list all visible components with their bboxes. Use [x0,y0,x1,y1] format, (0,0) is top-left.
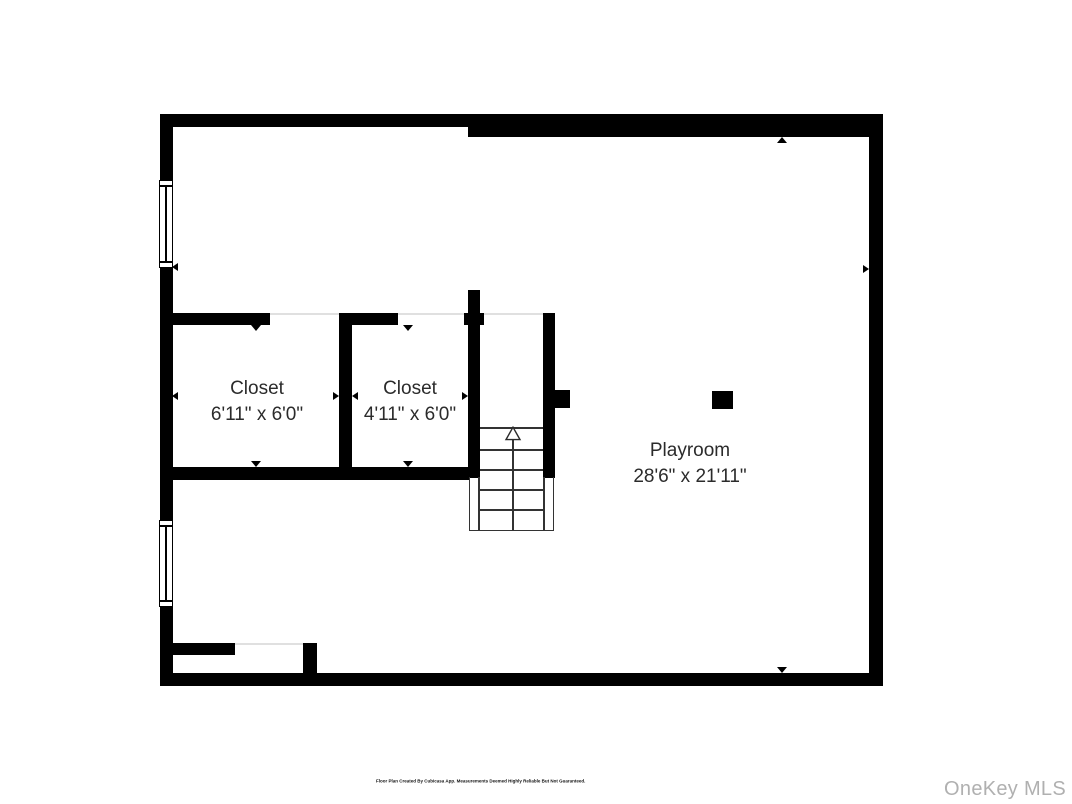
stair-left-wall [468,290,480,478]
wall-arrow-icon [462,392,468,400]
closet-divider-wall [339,313,352,480]
room-name: Playroom [633,438,746,464]
stair-direction-arrow-icon [504,426,522,441]
bottom-left-corner-wall [303,643,317,673]
room-name: Closet [211,376,303,402]
wall-arrow-icon [777,137,787,143]
wall-arrow-icon [777,667,787,673]
door-arrow-icon [251,325,261,331]
wall-arrow-icon [172,392,178,400]
bottom-left-stub-wall [172,643,235,655]
stair-side-line [478,477,480,531]
window-center-line [165,527,167,601]
room-label-closet-2: Closet 4'11" x 6'0" [364,376,456,428]
exterior-wall-right [869,114,883,686]
wall-arrow-icon [333,392,339,400]
floorplan-canvas: Closet 6'11" x 6'0" Closet 4'11" x 6'0" … [0,0,1072,804]
stair-center-line [512,428,514,531]
window-symbol-lower [159,520,173,607]
window-center-line [165,187,167,262]
window-symbol-upper [159,180,173,268]
watermark-onekey-mls: OneKey MLS [944,778,1066,801]
exterior-wall-top-thick-section [468,127,883,137]
wall-arrow-icon [863,265,869,273]
footer-disclaimer: Floor Plan Created By Cubicasa App. Meas… [376,779,585,784]
room-dims: 6'11" x 6'0" [211,402,303,428]
room-label-closet-1: Closet 6'11" x 6'0" [211,376,303,428]
stair-right-wall-stub [555,390,570,408]
door-arrow-icon [251,461,261,467]
closet1-top-wall [160,313,270,325]
wall-arrow-icon [172,263,178,271]
closet1-door-threshold [270,313,339,315]
door-arrow-icon [403,325,413,331]
closet2-door-threshold [398,313,464,315]
room-label-playroom: Playroom 28'6" x 21'11" [633,438,746,490]
door-arrow-icon [403,461,413,467]
room-dims: 4'11" x 6'0" [364,402,456,428]
bottom-left-door-threshold [235,643,303,645]
wall-arrow-icon [352,392,358,400]
room-dims: 28'6" x 21'11" [633,464,746,490]
stair-entry-threshold [484,313,543,315]
exterior-wall-top [160,114,883,127]
stair-side-line [543,477,545,531]
closet-bottom-wall [160,467,470,480]
playroom-column [712,391,733,409]
stair-right-wall [543,313,555,478]
room-name: Closet [364,376,456,402]
exterior-wall-bottom [160,673,883,686]
